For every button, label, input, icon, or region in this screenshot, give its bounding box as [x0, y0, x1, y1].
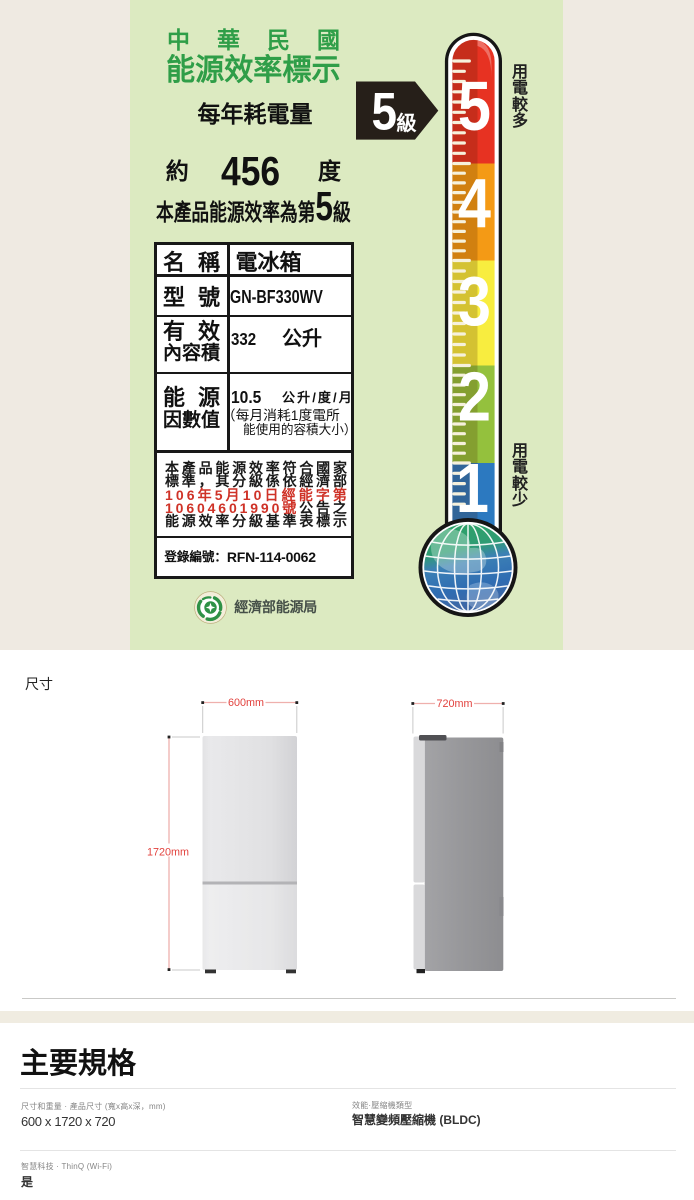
- svg-text:5: 5: [372, 82, 397, 141]
- svg-text:1720mm: 1720mm: [147, 847, 189, 859]
- svg-text:600mm: 600mm: [228, 697, 264, 709]
- svg-text:2: 2: [458, 357, 491, 436]
- svg-text:1: 1: [456, 448, 489, 527]
- svg-text:級: 級: [397, 111, 417, 135]
- svg-text:3: 3: [458, 262, 491, 341]
- svg-text:5: 5: [458, 66, 491, 145]
- svg-text:4: 4: [458, 164, 491, 243]
- svg-text:720mm: 720mm: [436, 698, 472, 710]
